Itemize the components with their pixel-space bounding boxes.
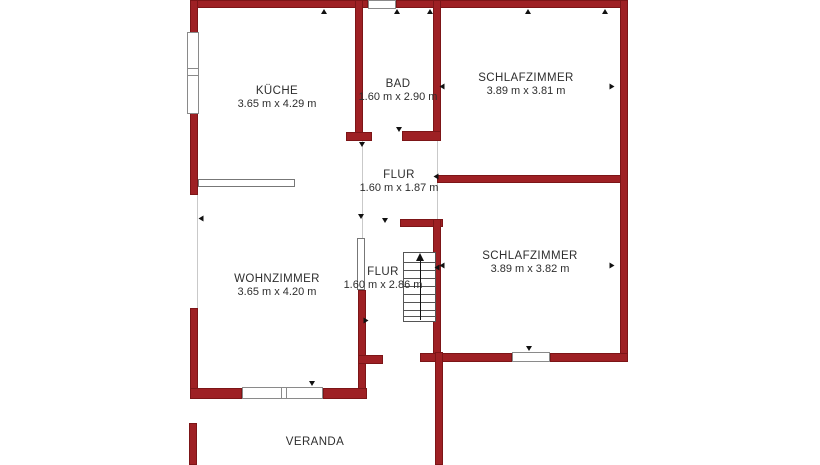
wall-exterior-left-upper xyxy=(190,0,198,33)
window-mullion xyxy=(188,68,199,69)
wall-schlafzimmer2-bottom-l xyxy=(420,353,512,362)
room-label-veranda: VERANDA xyxy=(286,436,344,449)
wall-veranda-right xyxy=(435,352,443,465)
room-name: BAD xyxy=(359,78,438,91)
dimension-marker-icon xyxy=(602,9,608,14)
room-name: SCHLAFZIMMER xyxy=(482,250,578,263)
window-wohnzimmer xyxy=(242,387,323,399)
room-dimensions: 3.65 m x 4.29 m xyxy=(238,98,317,111)
wall-bad-bottom xyxy=(402,131,441,141)
room-name: FLUR xyxy=(360,169,439,182)
dimension-marker-icon xyxy=(435,265,440,271)
room-label-schlafzimmer-2: SCHLAFZIMMER 3.89 m x 3.82 m xyxy=(482,250,578,276)
dimension-marker-icon xyxy=(359,142,365,147)
room-label-bad: BAD 1.60 m x 2.90 m xyxy=(359,78,438,104)
wall-exterior-left-mid xyxy=(190,113,198,195)
room-name: WOHNZIMMER xyxy=(234,273,320,286)
floor-plan xyxy=(0,0,820,465)
wall-wohnzimmer-bottom-l xyxy=(190,388,242,399)
wall-exterior-left-lower xyxy=(190,308,198,399)
opening-line xyxy=(197,195,198,308)
stairs-up-arrow-icon xyxy=(416,253,424,261)
dimension-marker-icon xyxy=(358,214,364,219)
room-dimensions: 1.60 m x 1.87 m xyxy=(360,182,439,195)
room-dimensions: 1.60 m x 2.90 m xyxy=(359,91,438,104)
window-kueche xyxy=(187,32,199,114)
wall-exterior-right xyxy=(620,0,628,362)
window-mullion xyxy=(286,388,287,398)
dimension-marker-icon xyxy=(382,218,388,223)
dimension-marker-icon xyxy=(526,346,532,351)
floor-plan-canvas: KÜCHE 3.65 m x 4.29 m BAD 1.60 m x 2.90 … xyxy=(0,0,820,465)
room-label-flur-2: FLUR 1.60 m x 2.86 m xyxy=(344,266,423,292)
dimension-marker-icon xyxy=(199,216,204,222)
room-dimensions: 1.60 m x 2.86 m xyxy=(344,279,423,292)
dimension-marker-icon xyxy=(364,318,369,324)
dimension-marker-icon xyxy=(525,9,531,14)
wall-bad-schlafzimmer xyxy=(433,0,441,132)
wall-kueche-bad xyxy=(355,0,363,133)
wall-exterior-top-right xyxy=(396,0,628,8)
dimension-marker-icon xyxy=(440,84,445,90)
room-label-schlafzimmer-1: SCHLAFZIMMER 3.89 m x 3.81 m xyxy=(478,72,574,98)
dimension-marker-icon xyxy=(321,9,327,14)
window-bad xyxy=(368,0,396,9)
wall-exterior-top-left xyxy=(190,0,368,8)
wall-bad-door-stub xyxy=(346,132,372,141)
room-label-kueche: KÜCHE 3.65 m x 4.29 m xyxy=(238,85,317,111)
wall-schlafzimmer2-bottom-r xyxy=(550,353,628,362)
window-mullion xyxy=(281,388,282,398)
window-schlafzimmer2 xyxy=(512,352,550,362)
window-mullion xyxy=(188,75,199,76)
wall-flur-door-stub xyxy=(358,355,383,364)
kitchen-counter xyxy=(198,179,295,187)
room-name: VERANDA xyxy=(286,436,344,449)
room-label-wohnzimmer: WOHNZIMMER 3.65 m x 4.20 m xyxy=(234,273,320,299)
room-name: SCHLAFZIMMER xyxy=(478,72,574,85)
wall-wohnzimmer-bottom-r xyxy=(323,388,367,399)
dimension-marker-icon xyxy=(610,84,615,90)
room-dimensions: 3.89 m x 3.82 m xyxy=(482,263,578,276)
wall-schlafzimmer-divider xyxy=(437,175,628,183)
dimension-marker-icon xyxy=(440,263,445,269)
dimension-marker-icon xyxy=(394,9,400,14)
dimension-marker-icon xyxy=(396,127,402,132)
dimension-marker-icon xyxy=(427,9,433,14)
wall-veranda-left xyxy=(189,423,197,465)
room-label-flur-1: FLUR 1.60 m x 1.87 m xyxy=(360,169,439,195)
room-name: KÜCHE xyxy=(238,85,317,98)
room-name: FLUR xyxy=(344,266,423,279)
dimension-marker-icon xyxy=(309,381,315,386)
dimension-marker-icon xyxy=(610,263,615,269)
room-dimensions: 3.65 m x 4.20 m xyxy=(234,286,320,299)
wall-wohnzimmer-flur xyxy=(358,290,366,399)
room-dimensions: 3.89 m x 3.81 m xyxy=(478,85,574,98)
